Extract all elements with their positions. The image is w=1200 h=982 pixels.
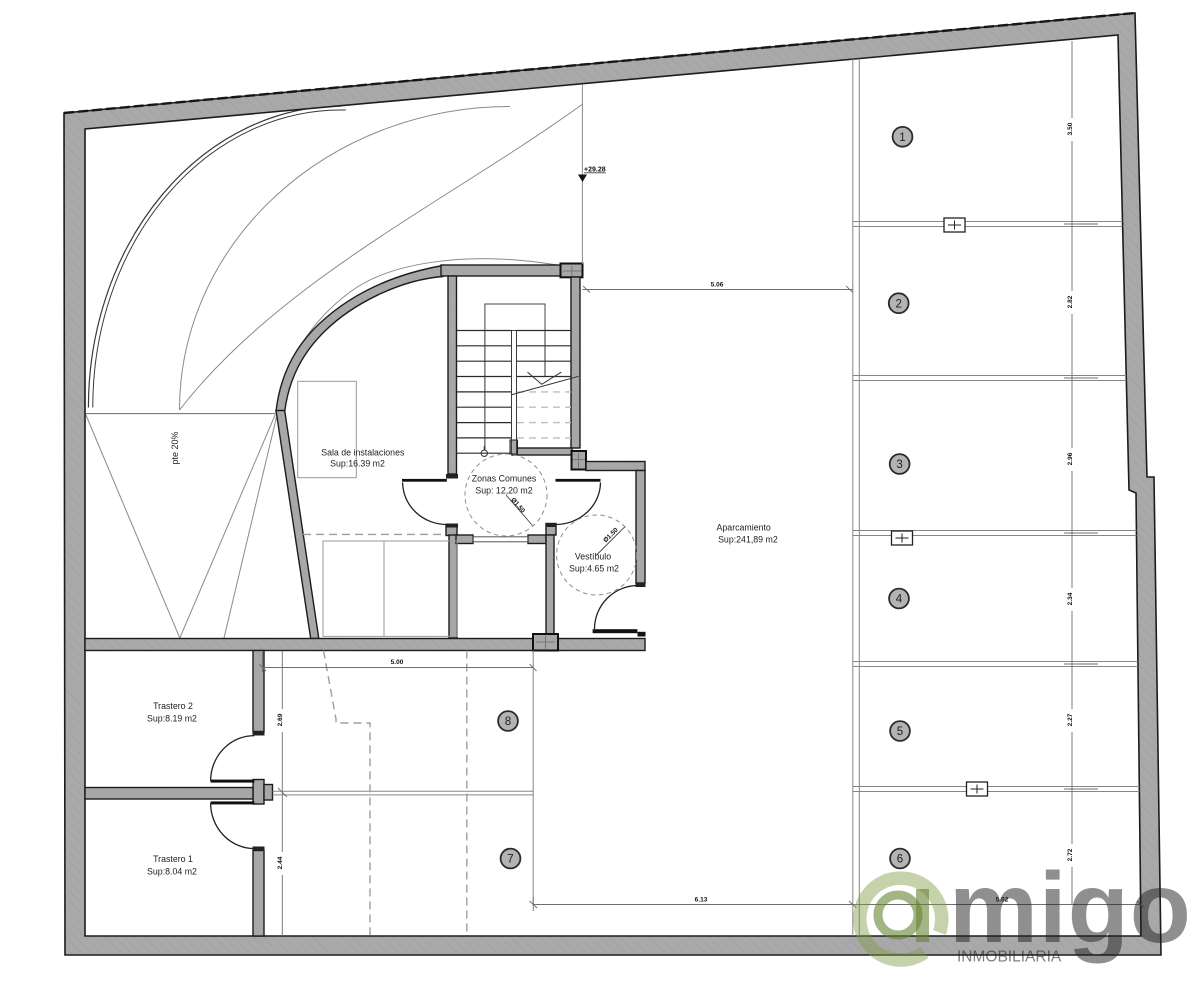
- svg-text:2.82: 2.82: [1067, 295, 1074, 308]
- svg-text:migo: migo: [949, 852, 1192, 964]
- svg-text:Sup: 12,20 m2: Sup: 12,20 m2: [475, 486, 532, 496]
- svg-text:Zonas Comunes: Zonas Comunes: [472, 474, 537, 484]
- svg-text:Trastero 2: Trastero 2: [153, 701, 193, 711]
- svg-text:2: 2: [895, 298, 901, 310]
- svg-text:5.00: 5.00: [391, 659, 404, 666]
- svg-text:Trastero 1: Trastero 1: [153, 854, 193, 864]
- svg-text:4: 4: [896, 594, 903, 606]
- svg-text:2.69: 2.69: [277, 713, 284, 726]
- svg-text:Sup:8.04 m2: Sup:8.04 m2: [147, 867, 197, 877]
- svg-text:5: 5: [897, 726, 903, 738]
- svg-text:+29.28: +29.28: [584, 167, 606, 174]
- svg-text:Sup:16.39 m2: Sup:16.39 m2: [330, 459, 385, 469]
- svg-text:Sup:8.19 m2: Sup:8.19 m2: [147, 714, 197, 724]
- svg-text:6: 6: [897, 854, 903, 866]
- svg-text:2.96: 2.96: [1067, 452, 1074, 465]
- svg-text:Vestíbulo: Vestíbulo: [575, 552, 611, 562]
- svg-text:2.44: 2.44: [277, 856, 284, 869]
- svg-text:Sup:4.65 m2: Sup:4.65 m2: [569, 564, 619, 574]
- svg-text:5.06: 5.06: [711, 282, 724, 289]
- svg-text:6.13: 6.13: [695, 897, 708, 904]
- svg-text:3: 3: [896, 459, 902, 471]
- svg-text:Aparcamiento: Aparcamiento: [717, 523, 771, 533]
- svg-text:INMOBILIARIA: INMOBILIARIA: [957, 949, 1062, 966]
- svg-text:pte 20%: pte 20%: [170, 431, 180, 464]
- svg-text:8: 8: [505, 716, 511, 728]
- svg-text:2.34: 2.34: [1067, 592, 1074, 605]
- svg-text:7: 7: [507, 854, 513, 866]
- svg-text:Sup:241,89 m2: Sup:241,89 m2: [718, 535, 778, 545]
- svg-text:1: 1: [899, 132, 905, 144]
- svg-text:Sala de instalaciones: Sala de instalaciones: [321, 448, 405, 458]
- svg-text:3.50: 3.50: [1067, 122, 1074, 135]
- svg-text:2.27: 2.27: [1067, 713, 1074, 726]
